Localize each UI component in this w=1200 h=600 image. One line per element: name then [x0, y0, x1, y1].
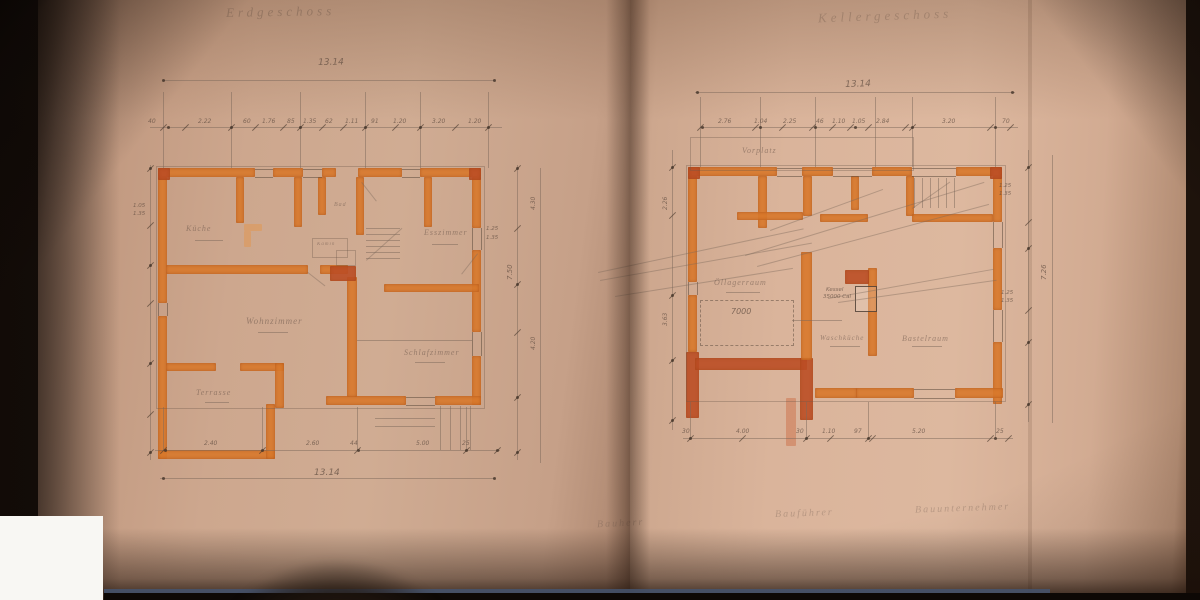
dimension-label: 1.10 [822, 428, 835, 435]
dimension-label: 3.63 [662, 313, 669, 326]
dimension-label: 46 [816, 118, 824, 125]
dimension-label: 3.20 [432, 118, 445, 125]
pencil-line [683, 438, 1013, 439]
pencil-line [700, 127, 1018, 128]
dimension-label: 4.30 [530, 197, 537, 210]
dimension-label: 35000 Cal [823, 294, 851, 300]
dimension-label: 1.20 [393, 118, 406, 125]
wall [158, 450, 275, 459]
dimension-label: 2.84 [876, 118, 889, 125]
dimension-label: 70 [1002, 118, 1010, 125]
dimension-label: 1.25 [1001, 290, 1013, 296]
pencil-line [1052, 155, 1053, 423]
pencil-line [540, 168, 541, 463]
pencil-line [150, 165, 151, 460]
dimension-label: 62 [325, 118, 333, 125]
pencil-line [163, 80, 495, 81]
room-label: Öllagerraum [714, 278, 767, 287]
pencil-line [806, 402, 807, 438]
pencil-line [760, 97, 761, 167]
dimension-label: 1.10 [832, 118, 845, 125]
dimension-label: 85 [287, 118, 295, 125]
pencil-rect [336, 250, 356, 266]
pencil-line [357, 340, 472, 341]
room-label: Terrasse [196, 388, 231, 397]
dimension-dot [162, 79, 165, 82]
pencil-line [815, 97, 816, 167]
room-label: Bad [334, 202, 347, 208]
pencil-line [938, 178, 939, 208]
dimension-label: 7000 [731, 307, 751, 316]
pencil-line [726, 292, 760, 293]
dimension-dot [167, 126, 170, 129]
dimension-label: 1.25 [999, 183, 1011, 189]
dimension-label: 3.20 [942, 118, 955, 125]
room-label: Waschküche [820, 334, 864, 342]
dimension-label: 30 [796, 428, 804, 435]
pencil-line [375, 426, 435, 427]
pencil-line [205, 402, 229, 403]
pencil-line [155, 450, 500, 451]
dimension-dot [994, 126, 997, 129]
caption-middle: Bauführer [775, 507, 834, 520]
pencil-line [160, 478, 495, 479]
dimension-dot [854, 126, 857, 129]
page-fold-shadow [606, 0, 650, 600]
dimension-label: 2.25 [783, 118, 796, 125]
dimension-label: 2.26 [662, 197, 669, 210]
pencil-line [366, 258, 400, 259]
dimension-label: 2.76 [718, 118, 731, 125]
pencil-line [912, 97, 913, 167]
dimension-label: Kessel [826, 287, 843, 293]
dimension-label: 1.20 [468, 118, 481, 125]
pencil-line [470, 406, 471, 450]
dimension-label: 25 [462, 440, 470, 447]
white-corner-background [0, 516, 103, 600]
dimension-label: 60 [243, 118, 251, 125]
dimension-label: 1.25 [486, 226, 498, 232]
pencil-line [488, 92, 489, 168]
room-label: Kamin [317, 242, 335, 247]
room-label: Vorplatz [742, 146, 777, 155]
dimension-label: 1.04 [754, 118, 767, 125]
pencil-line [365, 92, 366, 168]
pencil-line [450, 406, 451, 450]
dimension-label: 1.76 [262, 118, 275, 125]
pencil-rect [156, 166, 485, 409]
room-label: Schlafzimmer [404, 348, 460, 357]
pencil-line [375, 418, 435, 419]
plan-drawings: 13.14402.22601.76851.35621.11911.203.201… [0, 0, 1200, 600]
dimension-dot [814, 126, 817, 129]
pencil-line [366, 228, 400, 229]
pencil-line [231, 92, 232, 168]
dimension-label: 2.60 [306, 440, 319, 447]
dimension-dot [759, 126, 762, 129]
pencil-line [195, 240, 223, 241]
pencil-line [995, 97, 996, 167]
dimension-dot [162, 477, 165, 480]
pencil-rect [690, 137, 914, 171]
pencil-line [432, 244, 458, 245]
pencil-line [930, 178, 931, 208]
pencil-line [366, 252, 400, 253]
room-label: Esszimmer [424, 228, 468, 237]
dimension-label: 5.20 [912, 428, 925, 435]
photo-left-shadow [0, 0, 120, 600]
dimension-label: 25 [996, 428, 1004, 435]
pencil-line [420, 92, 421, 168]
pencil-line [875, 97, 876, 167]
dimension-label: 4.20 [530, 337, 537, 350]
room-label: Küche [186, 224, 211, 233]
pencil-line [366, 246, 400, 247]
pencil-line [868, 402, 869, 438]
pencil-line [163, 92, 164, 168]
dimension-dot [696, 91, 699, 94]
dimension-label: 2.40 [204, 440, 217, 447]
pencil-line [912, 346, 942, 347]
pencil-line [922, 178, 923, 208]
dimension-label: 1.05 [133, 203, 145, 209]
pencil-line [366, 240, 400, 241]
pencil-line [415, 362, 445, 363]
dimension-dot [493, 79, 496, 82]
room-label: Wohnzimmer [246, 316, 303, 326]
dimension-label: 97 [854, 428, 862, 435]
dimension-label: 1.35 [133, 211, 145, 217]
dimension-dot [994, 437, 997, 440]
pencil-line [672, 150, 673, 430]
dimension-label: 40 [148, 118, 156, 125]
pencil-line [517, 165, 518, 460]
dimension-label: 1.05 [852, 118, 865, 125]
dimension-label: 91 [371, 118, 379, 125]
dimension-label: 1.35 [486, 235, 498, 241]
dimension-label: 1.35 [999, 191, 1011, 197]
pencil-line [163, 407, 164, 450]
dimension-label: 13.14 [314, 468, 340, 478]
pencil-line [830, 346, 860, 347]
pencil-line [460, 406, 461, 450]
dimension-label: 1.35 [1001, 298, 1013, 304]
dimension-label: 30 [682, 428, 690, 435]
pencil-line [695, 92, 1015, 93]
dimension-dot [493, 477, 496, 480]
dimension-label: 5.00 [416, 440, 429, 447]
pencil-line [440, 406, 441, 450]
dimension-label: 44 [350, 440, 358, 447]
pencil-line [1028, 150, 1029, 422]
pencil-line [954, 178, 955, 208]
pencil-line [690, 402, 691, 438]
pencil-line [300, 92, 301, 168]
pencil-line [150, 127, 502, 128]
dimension-label: 13.14 [845, 79, 871, 90]
dimension-label: 7.50 [506, 264, 514, 280]
dimension-label: 4.00 [736, 428, 749, 435]
dimension-dot [1011, 91, 1014, 94]
pencil-line [258, 332, 288, 333]
dimension-label: 7.26 [1040, 264, 1048, 280]
pencil-line [792, 320, 842, 321]
pencil-line [700, 97, 701, 167]
pencil-line [262, 407, 263, 450]
dimension-label: 2.22 [198, 118, 211, 125]
photo-of-floor-plans: Erdgeschoss Kellergeschoss 13.14402.2260… [0, 0, 1200, 600]
room-label: Bastelraum [902, 334, 949, 343]
dimension-label: 13.14 [318, 58, 344, 68]
dimension-label: 1.11 [345, 118, 358, 125]
dimension-label: 1.35 [303, 118, 316, 125]
